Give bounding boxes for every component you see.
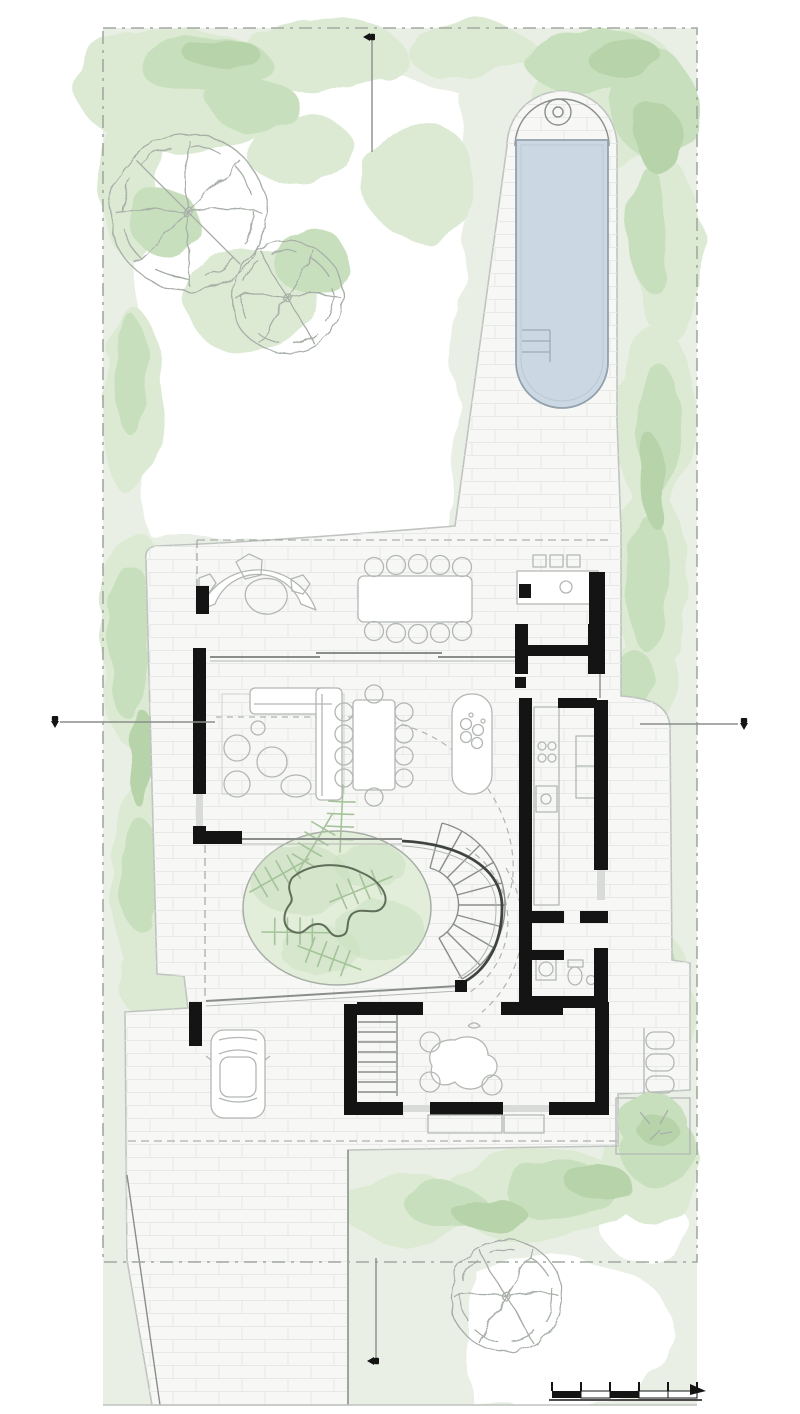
living-corner-h — [193, 831, 242, 844]
section-marker-left — [51, 716, 59, 728]
car-body — [211, 1030, 265, 1118]
car — [206, 1030, 270, 1118]
entry-wall-right — [588, 624, 605, 674]
pantry-west-wall — [519, 923, 532, 1008]
kitchen-mid-wall-b — [580, 911, 608, 923]
scale-seg-1 — [552, 1391, 581, 1398]
entry-wall-cross — [528, 645, 590, 656]
scale-seg-3 — [610, 1391, 639, 1398]
study-north-wall-b — [501, 1002, 563, 1015]
pool-area — [515, 99, 609, 408]
entry-wall-foot — [515, 677, 526, 688]
pool-water — [516, 140, 608, 408]
courtyard-wall-cap — [455, 980, 467, 992]
wc-divider — [532, 950, 564, 960]
study-east-wall — [595, 1002, 609, 1114]
scale-seg-2 — [581, 1391, 610, 1398]
terrace-column — [196, 586, 209, 614]
entry-wall-left — [515, 624, 528, 674]
study-south-window-b — [503, 1105, 549, 1112]
study-south-wall-b — [430, 1102, 503, 1115]
kitchen-east-window — [597, 870, 605, 900]
scale-seg-4 — [639, 1391, 668, 1398]
living-west-wall — [193, 648, 206, 794]
kitchen-east-wall — [594, 700, 608, 870]
study-south-window-a — [403, 1105, 430, 1112]
study-south-wall-a — [344, 1102, 403, 1115]
dining-table — [353, 700, 395, 790]
study-south-wall-c — [549, 1102, 609, 1115]
study-north-wall-a — [357, 1002, 423, 1015]
kitchen-mid-wall-a — [519, 911, 564, 923]
site-plan-page — [0, 0, 800, 1414]
section-marker-right — [740, 718, 748, 730]
bed-shrub — [618, 1094, 686, 1150]
living-west-window — [196, 794, 203, 826]
kitchen-west-wall — [519, 698, 532, 919]
study-west-wall — [344, 1004, 357, 1115]
site-plan-drawing — [0, 0, 800, 1414]
outdoor-dining-table — [358, 576, 472, 622]
bbq-pier-left — [519, 584, 531, 598]
carport-wall — [189, 1002, 202, 1046]
kitchen-north-wall — [558, 698, 597, 708]
